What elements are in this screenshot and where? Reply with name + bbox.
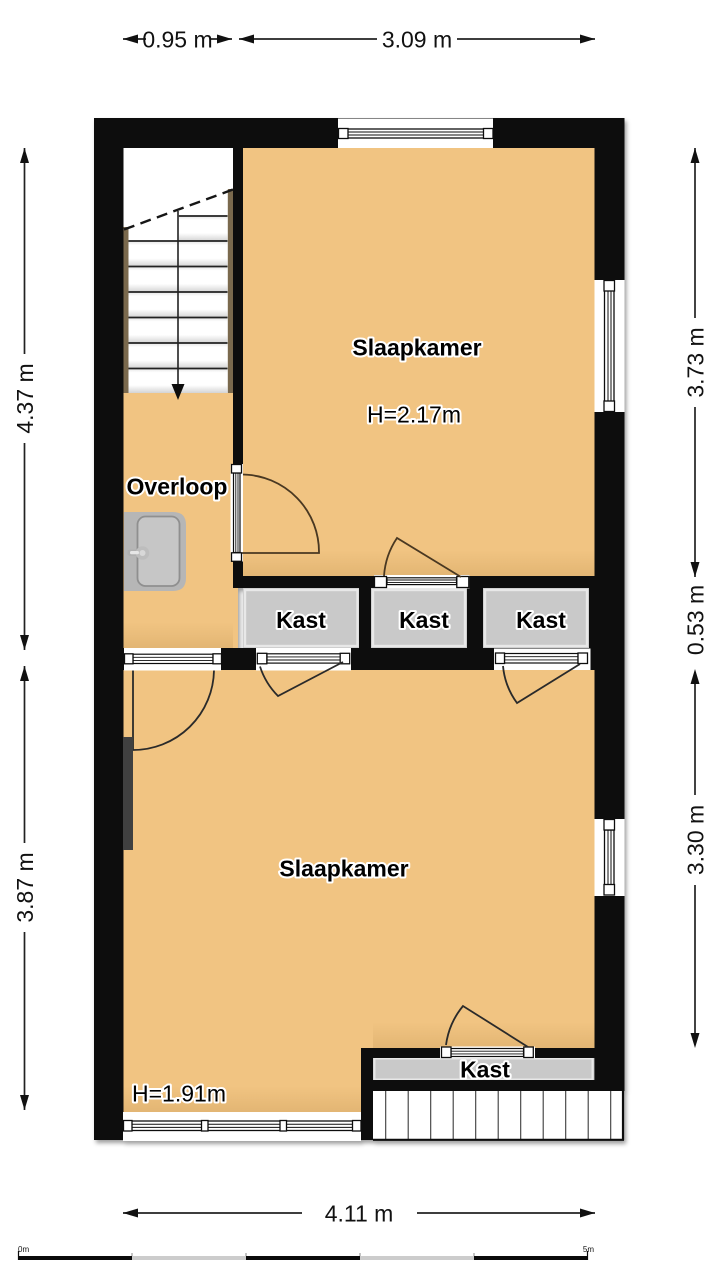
svg-text:3.30 m: 3.30 m — [683, 805, 709, 875]
svg-text:H=2.17m: H=2.17m — [367, 402, 461, 428]
svg-text:Slaapkamer: Slaapkamer — [279, 856, 408, 882]
svg-text:0.53 m: 0.53 m — [683, 585, 709, 655]
svg-text:0.95 m: 0.95 m — [142, 27, 212, 53]
svg-text:Kast: Kast — [276, 607, 326, 633]
svg-text:Kast: Kast — [399, 607, 449, 633]
svg-text:5m: 5m — [583, 1245, 594, 1254]
svg-text:4.37 m: 4.37 m — [12, 363, 38, 433]
svg-text:Kast: Kast — [460, 1057, 510, 1083]
svg-text:4.11 m: 4.11 m — [325, 1201, 394, 1227]
svg-text:3.73 m: 3.73 m — [683, 327, 709, 397]
svg-text:0m: 0m — [18, 1245, 29, 1254]
svg-text:Overloop: Overloop — [127, 474, 228, 500]
svg-text:Kast: Kast — [516, 607, 566, 633]
svg-text:Slaapkamer: Slaapkamer — [352, 335, 481, 361]
svg-text:H=1.91m: H=1.91m — [132, 1081, 226, 1107]
svg-text:3.09 m: 3.09 m — [382, 27, 452, 53]
svg-text:3.87 m: 3.87 m — [12, 852, 38, 922]
